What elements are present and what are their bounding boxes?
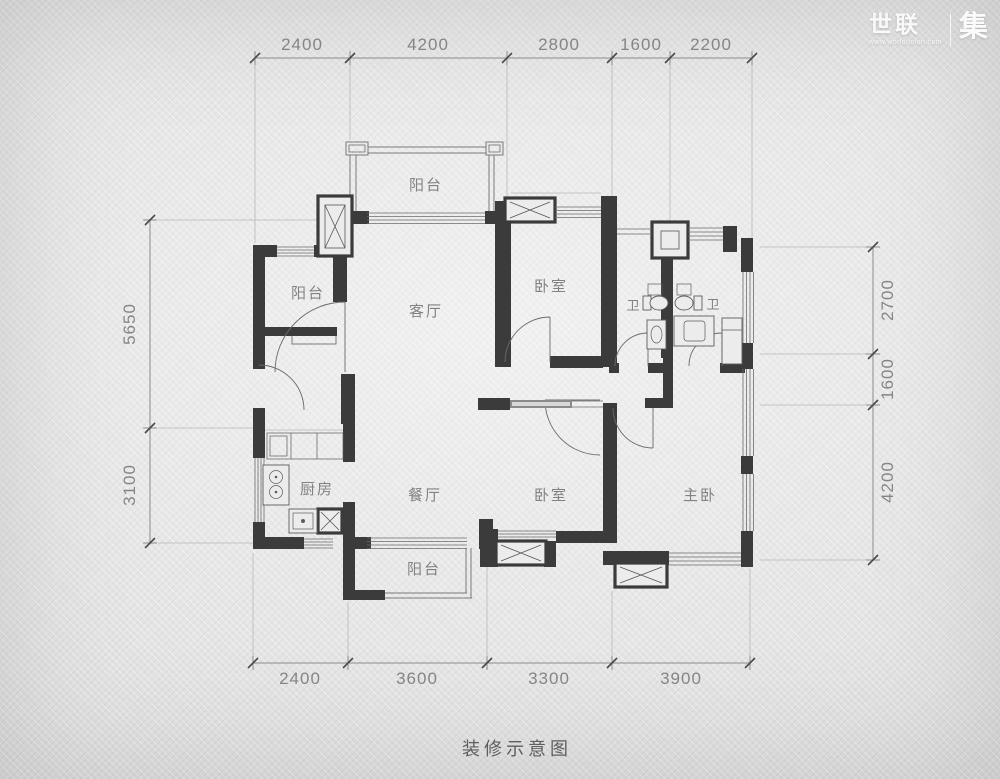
room-label-bedroom-bottom: 卧室 [534,487,568,504]
door-arc [545,400,600,455]
sliding-door [510,400,603,408]
room-label-balcony-left: 阳台 [291,285,325,302]
door-arc [613,408,653,448]
dim-right-2: 1600 [878,358,897,400]
toilet-icon [643,296,668,310]
dim-top-4: 1600 [620,35,662,54]
vanity-sink-icon [674,316,714,346]
room-label-master: 主卧 [683,487,717,504]
room-label-bath-right: 卫 [706,297,719,312]
flue-box-icon [318,196,352,256]
flue-box-icon [318,509,342,533]
bay-window-icon [505,198,555,222]
dim-top-5: 2200 [690,35,732,54]
bathtub-icon [722,318,742,364]
dim-top-3: 2800 [538,35,580,54]
dim-bottom-1: 2400 [279,669,321,688]
dim-right-1: 2700 [878,279,897,321]
door-arc [615,333,648,366]
room-label-bath-left: 卫 [626,298,639,313]
bay-window-icon [496,541,546,565]
shaft-box-icon [652,222,688,258]
floorplan-page: 世联 www.worldunion.com 集 2400 [0,0,1000,779]
kitchen-sink-icon [289,509,317,533]
room-label-living: 客厅 [409,303,443,320]
dim-bottom-2: 3600 [396,669,438,688]
dim-bottom-4: 3900 [660,669,702,688]
dim-right-3: 4200 [878,461,897,503]
room-label-balcony-bottom: 阳台 [407,561,441,578]
door-arc [259,365,304,410]
dim-bottom-3: 3300 [528,669,570,688]
door-arc [275,302,345,372]
dim-top-1: 2400 [281,35,323,54]
stove-icon [263,465,289,505]
kitchen-cabinet-icon [267,433,343,459]
dim-left-1: 5650 [120,303,139,345]
page-title: 装修示意图 [417,735,617,761]
dim-top-2: 4200 [407,35,449,54]
bay-window-icon [615,563,667,587]
dim-left-2: 3100 [120,464,139,506]
bathroom-sink-icon [647,320,666,349]
room-label-kitchen: 厨房 [300,481,334,498]
toilet-icon [675,296,702,310]
room-label-dining: 餐厅 [408,487,442,504]
door-arc [505,317,550,362]
floorplan-canvas: 2400 4200 2800 1600 2200 2400 3600 3300 … [0,0,1000,779]
room-label-balcony-top: 阳台 [409,177,443,194]
room-label-bedroom-top: 卧室 [534,278,568,295]
